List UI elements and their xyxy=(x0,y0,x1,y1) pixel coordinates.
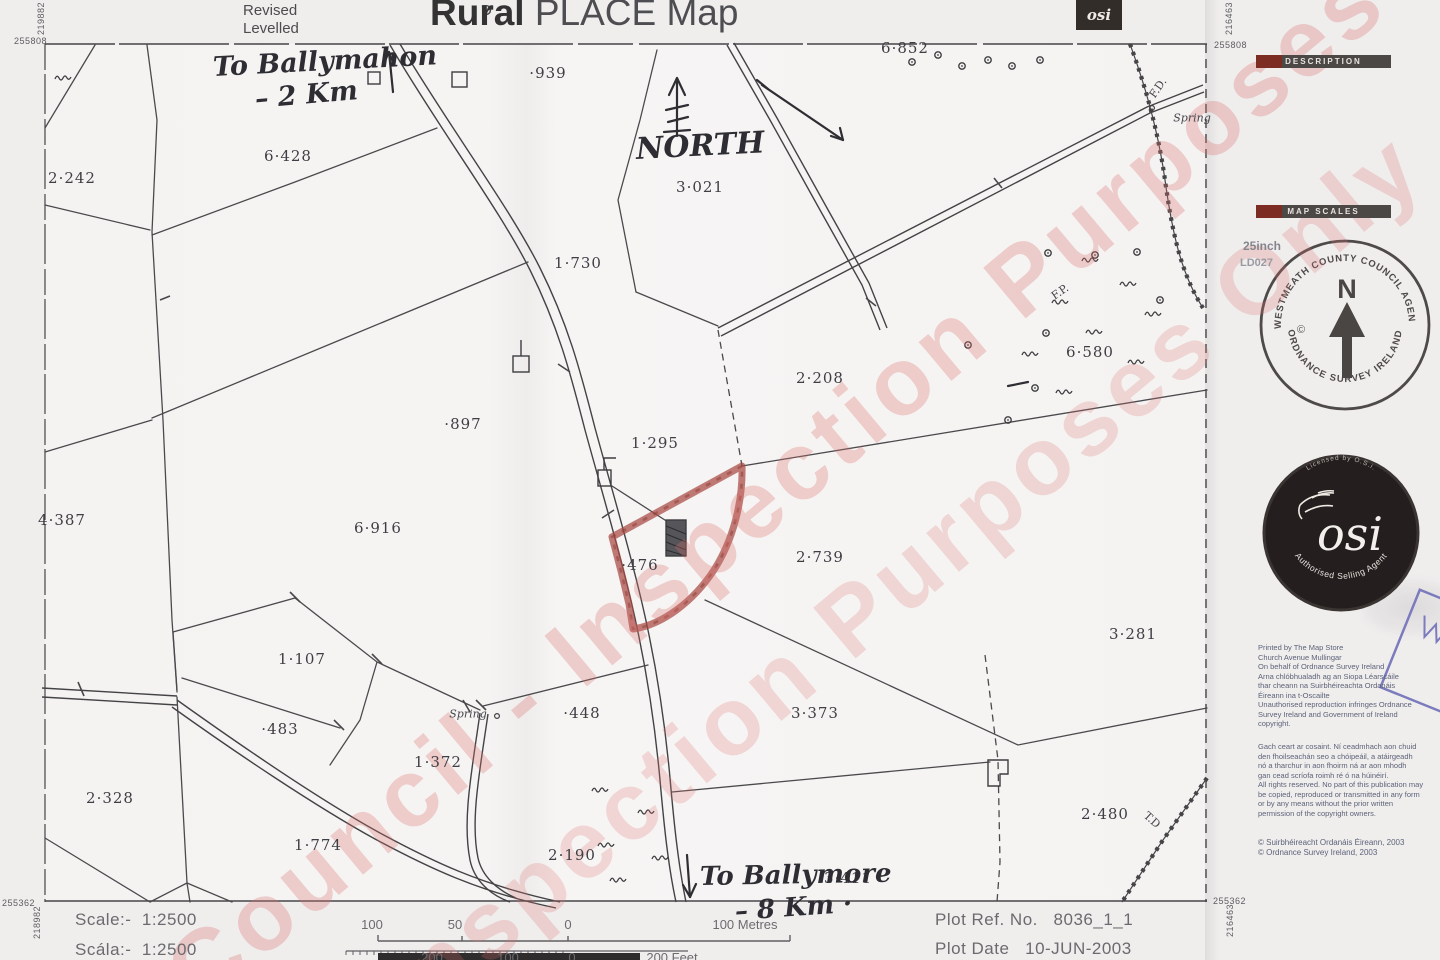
coord-bottom-right-v: 216463 xyxy=(1225,904,1235,937)
description-bar: DESCRIPTION xyxy=(1256,55,1391,68)
levelled-label: Levelled xyxy=(243,20,299,37)
feet-tick-label: 100 xyxy=(497,950,519,960)
coord-bottom-left-v: 218982 xyxy=(32,906,42,939)
parcel-label: 1·730 xyxy=(554,254,602,272)
fineprint-line: Arna chlóbhualadh ag an Siopa Léarscáile xyxy=(1258,672,1433,682)
fineprint-line: On behalf of Ordnance Survey Ireland xyxy=(1258,662,1433,672)
fineprint-line: All rights reserved. No part of this pub… xyxy=(1258,780,1433,790)
parcel-label: 1·295 xyxy=(631,434,679,452)
fineprint-line: thar cheann na Suirbhéireachta Ordanáis xyxy=(1258,681,1433,691)
parcel-label: ·448 xyxy=(563,704,600,722)
fineprint-line: Éireann ina t-Oscailte xyxy=(1258,691,1433,701)
feature-label: Spring xyxy=(449,708,486,721)
sheet-ref-label: LD027 xyxy=(1240,257,1273,269)
parcel-label: 1·774 xyxy=(294,836,342,854)
fineprint-line: gan cead scríofa roimh ré ó na húinéirí. xyxy=(1258,771,1433,781)
dashed-boundaries xyxy=(718,330,1000,902)
hatched-lines xyxy=(1122,44,1207,902)
parcel-label: ·897 xyxy=(444,415,481,433)
fineprint-line: Survey Ireland and Government of Ireland xyxy=(1258,710,1433,720)
metre-tick-label: 0 xyxy=(564,917,571,932)
feet-scale-end: 200 Feet xyxy=(646,950,697,960)
fineprint-line: permission of the copyright owners. xyxy=(1258,809,1433,819)
parcel-label: ·476 xyxy=(621,556,658,574)
parcel-label: 3·281 xyxy=(1109,625,1157,643)
svg-text:WESTMEATH COUNTY COUNCIL AGENT: WESTMEATH COUNTY COUNCIL AGENT xyxy=(0,0,1417,329)
parcel-label: 2·208 xyxy=(796,369,844,387)
parcel-label: 6·852 xyxy=(881,39,929,57)
boundary-ticks xyxy=(78,178,1002,730)
fineprint-line: nó a tharchur in aon fhoirm ná ar aon mh… xyxy=(1258,761,1433,771)
parcel-label: 3·021 xyxy=(676,178,724,196)
coord-top-left-v: 219882 xyxy=(36,2,46,35)
parcel-label: 6·428 xyxy=(264,147,312,165)
svg-text:osi: osi xyxy=(1317,507,1383,561)
revision-table: Revised D Levelled D xyxy=(243,2,299,38)
parcel-label: 2·242 xyxy=(48,169,96,187)
metre-tick-label: 100 xyxy=(361,917,383,932)
scale-label-irish: Scála:- 1:2500 xyxy=(75,940,197,960)
osi-seal: Licensed by O.S.i. osi Authorised Sellin… xyxy=(1264,455,1418,610)
parcel-label: 1·107 xyxy=(278,650,326,668)
fineprint-line: be copied, reproduced or transmitted in … xyxy=(1258,790,1433,800)
metre-tick-label: 50 xyxy=(448,917,462,932)
parcel-label: 2·190 xyxy=(548,846,596,864)
feature-label: Spring xyxy=(1173,112,1210,125)
parcel-label: 3·373 xyxy=(791,704,839,722)
copyright-symbol: © xyxy=(1297,324,1305,336)
fineprint-line: Printed by The Map Store xyxy=(1258,643,1433,653)
svg-text:N: N xyxy=(1337,274,1357,304)
osi-logo: osi xyxy=(1076,0,1122,30)
metre-scale-end: 100 Metres xyxy=(712,917,777,932)
parcel-label: 4·387 xyxy=(38,511,86,529)
plot-ref: Plot Ref. No. 8036_1_1 xyxy=(935,910,1133,930)
coord-top-left-h: 255808 xyxy=(14,36,47,46)
fineprint-line: © Ordnance Survey Ireland, 2003 xyxy=(1258,848,1433,858)
feet-tick-label: 0 xyxy=(568,950,575,960)
fineprint-line: Unauthorised reproduction infringes Ordn… xyxy=(1258,700,1433,710)
page-title: Rural PLACE Map xyxy=(430,0,738,34)
coord-bottom-left-h: 255362 xyxy=(2,898,35,908)
roads xyxy=(42,43,1204,908)
handwritten-note: To Ballymore xyxy=(700,859,892,892)
plot-date: Plot Date 10-JUN-2003 xyxy=(935,939,1132,959)
parcel-label: 2·480 xyxy=(1081,805,1129,823)
parcel-label: 6·916 xyxy=(354,519,402,537)
handwritten-note: NORTH xyxy=(635,125,765,167)
hatched-building xyxy=(666,520,686,556)
scale-inch-label: 25inch xyxy=(1243,239,1281,253)
vegetation-symbols xyxy=(55,52,1163,882)
parcel-label: 6·580 xyxy=(1066,343,1114,361)
scale-label: Scale:- 1:2500 xyxy=(75,910,197,930)
map-scales-bar: MAP SCALES xyxy=(1256,205,1391,218)
fineprint-line: © Suirbhéireacht Ordanáis Éireann, 2003 xyxy=(1258,838,1433,848)
coord-top-right-v: 216463 xyxy=(1224,2,1234,35)
parcel-label: 2·328 xyxy=(86,789,134,807)
scanned-rural-place-map: WESTMEATH COUNTY COUNCIL AGENT ORDNANCE … xyxy=(0,0,1440,960)
fineprint-line: copyright. xyxy=(1258,719,1433,729)
fineprint-line: Gach ceart ar cosaint. Ní ceadmhach aon … xyxy=(1258,742,1433,752)
revised-label: Revised xyxy=(243,2,297,19)
copyright-notice-text: Gach ceart ar cosaint. Ní ceadmhach aon … xyxy=(1258,742,1433,818)
feet-tick-label: 200 xyxy=(421,950,443,960)
parcel-label: 1·372 xyxy=(414,753,462,771)
fineprint-line: den fhoilseachán seo a chóipeáil, a atái… xyxy=(1258,752,1433,762)
imprint-text: Printed by The Map StoreChurch Avenue Mu… xyxy=(1258,643,1433,729)
parcel-label: ·483 xyxy=(261,720,298,738)
copyright-lines: © Suirbhéireacht Ordanáis Éireann, 2003©… xyxy=(1258,838,1433,857)
coord-top-right-h: 255808 xyxy=(1214,40,1247,50)
parcel-label: ·939 xyxy=(529,64,566,82)
fineprint-line: or by any means without the prior writte… xyxy=(1258,799,1433,809)
parcel-label: 2·739 xyxy=(796,548,844,566)
fineprint-line: Church Avenue Mullingar xyxy=(1258,653,1433,663)
